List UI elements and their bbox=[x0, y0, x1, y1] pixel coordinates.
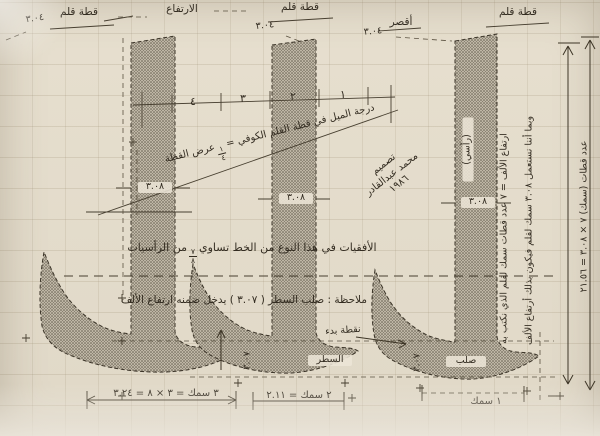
stroke-width-label-1: ٣.٠٨ bbox=[138, 182, 172, 193]
dimension-text-2: ٢ سمك = ٢.١١ bbox=[256, 390, 342, 402]
alif-height-calculation: عدد قطات (سمك) ٧ × ٣.٠٨ = ٢١.٥٦ bbox=[580, 46, 591, 386]
pen-cut-label-left: قطة قلم bbox=[48, 6, 110, 18]
ruler-tick-3: ٣ bbox=[236, 93, 250, 106]
scanned-calligraphy-diagram-page: قطة قلم ٣.٠٤ الارتفاع قطة قلم ٣.٠٤ أقصر … bbox=[0, 0, 600, 436]
ruler-tick-4: ٤ bbox=[186, 96, 200, 109]
foot-height-label-1: ٣.٠٧ bbox=[243, 345, 254, 375]
solid-part-label: صلب bbox=[446, 356, 486, 367]
height-label: الارتفاع bbox=[149, 3, 215, 15]
ruler-tick-2: ٢ bbox=[286, 91, 300, 104]
dimension-text-1: ٣ سمك = ٣ × ٨ = ٣.٢٤ bbox=[98, 388, 234, 400]
horizontals-fraction-denominator: ٨ bbox=[191, 257, 195, 265]
vertical-direction-label: (رأسي) bbox=[463, 117, 474, 181]
stroke-width-label-2: ٣.٠٨ bbox=[279, 193, 313, 204]
alif-stroke-2 bbox=[190, 39, 358, 373]
slant-fraction-denominator: ٤ bbox=[221, 154, 227, 163]
alif-height-note-2: وبما أننا نستعمل ٣.٠٨ سمك لقلم فيكون بذل… bbox=[525, 85, 536, 375]
stroke-width-label-3: ٣.٠٨ bbox=[461, 197, 495, 208]
pen-cut-label-right: قطة قلم bbox=[486, 6, 550, 18]
the-line-label: السطر bbox=[308, 355, 352, 366]
horizontals-ratio-note: الأفقيات في هذا النوع من الخط تساوي٧٨من … bbox=[80, 242, 424, 265]
horizontals-note-text-tail: من الرأسيات bbox=[127, 241, 187, 254]
baseline-note: ملاحظة : صلب السطر ( ٣.٠٧ ) يدخل ضمنه ار… bbox=[116, 294, 372, 306]
ruler-tick-1: ١ bbox=[336, 89, 350, 102]
foot-height-label-2: ٣.٠٧ bbox=[413, 347, 424, 377]
horizontals-note-text: الأفقيات في هذا النوع من الخط تساوي bbox=[199, 241, 377, 254]
alif-height-note-1: ارتفاع الألف = ٧ عدد قطات سمك لقلم الذي … bbox=[500, 98, 511, 378]
dimension-text-3: ١ سمك bbox=[462, 396, 510, 408]
alif-stroke-3 bbox=[372, 34, 539, 379]
pen-cut-label-middle: قطة قلم bbox=[267, 1, 333, 13]
horizontals-fraction: ٧٨ bbox=[189, 248, 197, 265]
